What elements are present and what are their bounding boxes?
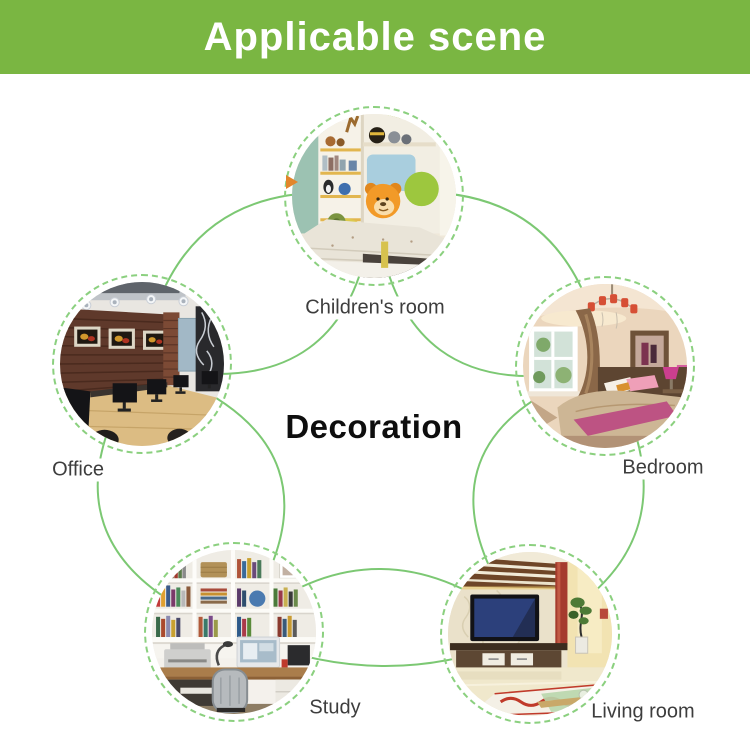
bedroom-illustration bbox=[523, 284, 687, 448]
label-study: Study bbox=[305, 697, 364, 720]
printer bbox=[164, 643, 211, 669]
label-bedroom: Bedroom bbox=[618, 457, 707, 480]
toy-shelf-unit bbox=[318, 116, 363, 229]
study-illustration bbox=[152, 550, 316, 714]
second-monitor bbox=[288, 645, 310, 665]
tv-cabinet bbox=[450, 643, 567, 668]
header-banner: Applicable scene bbox=[0, 0, 750, 74]
label-children-room: Children's room bbox=[301, 297, 448, 320]
scene-circle-study bbox=[144, 542, 324, 722]
label-office: Office bbox=[48, 459, 108, 482]
arrow-marker bbox=[286, 175, 298, 189]
wardrobe bbox=[361, 114, 456, 235]
children-room-photo bbox=[292, 114, 456, 278]
globe bbox=[249, 590, 265, 606]
applicable-scene-infographic: Applicable scene Decoration bbox=[0, 0, 750, 750]
page-title: Applicable scene bbox=[204, 17, 547, 57]
office-chair bbox=[213, 669, 247, 712]
study-photo bbox=[152, 550, 316, 714]
label-living-room: Living room bbox=[587, 701, 698, 724]
scene-circle-office bbox=[52, 274, 232, 454]
living-room-photo bbox=[448, 552, 612, 716]
scene-circle-bedroom bbox=[515, 276, 695, 456]
red-cup bbox=[282, 659, 288, 667]
office-photo bbox=[60, 282, 224, 446]
children-room-illustration bbox=[292, 114, 456, 278]
office-illustration bbox=[60, 282, 224, 446]
brick-column bbox=[163, 312, 179, 385]
living-room-illustration bbox=[448, 552, 612, 716]
window bbox=[527, 327, 580, 397]
scene-circle-children-room bbox=[284, 106, 464, 286]
tv bbox=[470, 595, 539, 642]
center-title: Decoration bbox=[279, 408, 468, 446]
red-accent-column bbox=[555, 562, 567, 645]
scene-circle-living-room bbox=[440, 544, 620, 724]
bee-plush bbox=[369, 127, 385, 143]
bedroom-photo bbox=[523, 284, 687, 448]
